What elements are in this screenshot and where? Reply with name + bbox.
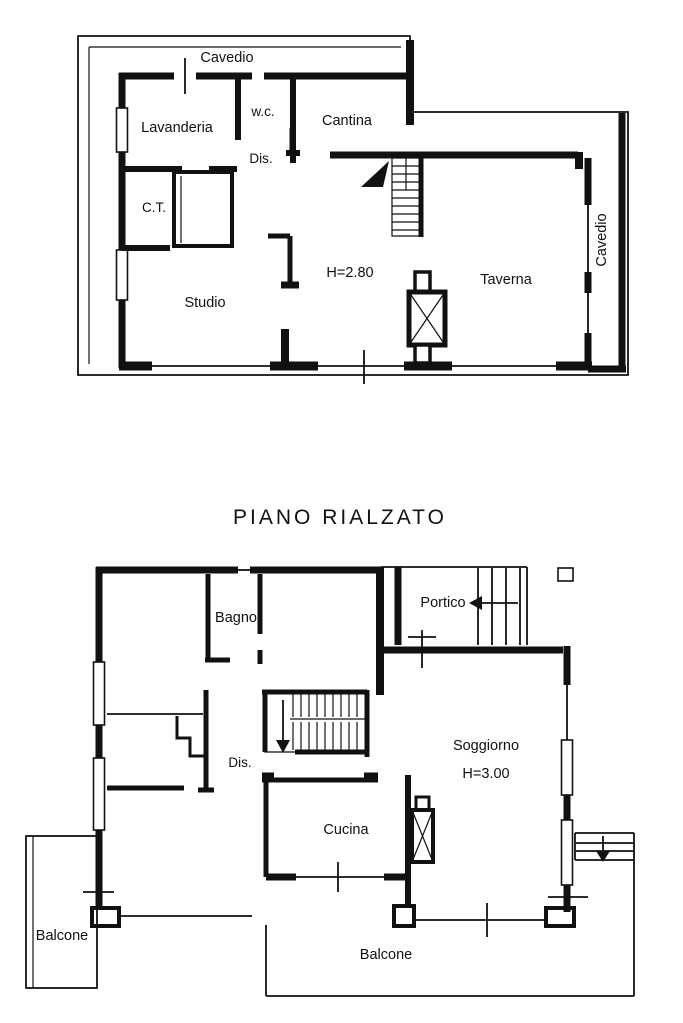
- rialzato-stairs: [262, 690, 367, 757]
- pillar-square: [558, 568, 573, 581]
- stair-direction-arrow: [361, 161, 389, 187]
- left-balcony-outline: [26, 836, 97, 988]
- label-balcone-left: Balcone: [36, 928, 88, 944]
- rialzato-flue: [412, 797, 433, 862]
- floor-plan-drawing: Cavedio Lavanderia w.c. Cantina Dis. C.T…: [0, 0, 683, 1023]
- label-cucina: Cucina: [323, 822, 369, 838]
- label-lavanderia: Lavanderia: [141, 120, 214, 136]
- basement-flue: [409, 272, 445, 363]
- label-soggiorno: Soggiorno: [453, 738, 519, 754]
- stair-down-arrow: [276, 740, 290, 753]
- label-dis-rialzato: Dis.: [228, 755, 251, 770]
- label-dis-basement: Dis.: [249, 151, 272, 166]
- label-wc: w.c.: [250, 104, 274, 119]
- label-studio: Studio: [184, 295, 225, 311]
- label-height-rialzato: H=3.00: [462, 766, 509, 782]
- label-balcone-bottom: Balcone: [360, 947, 412, 963]
- basement-stairs: [361, 155, 421, 237]
- basement-plan: Cavedio Lavanderia w.c. Cantina Dis. C.T…: [78, 36, 628, 384]
- label-cantina: Cantina: [322, 113, 373, 129]
- entry-arrow: [469, 596, 482, 610]
- plan-title: PIANO RIALZATO: [233, 506, 447, 529]
- rialzato-plan: Bagno Portico Dis. Soggiorno H=3.00 Cuci…: [26, 567, 634, 996]
- label-bagno: Bagno: [215, 610, 257, 626]
- label-cavedio-right: Cavedio: [594, 213, 610, 266]
- label-portico: Portico: [420, 595, 465, 611]
- floor-plan-sheet: Cavedio Lavanderia w.c. Cantina Dis. C.T…: [0, 0, 683, 1023]
- label-ct: C.T.: [142, 200, 166, 215]
- label-taverna: Taverna: [480, 272, 533, 288]
- label-cavedio-top: Cavedio: [200, 50, 253, 66]
- label-height-basement: H=2.80: [326, 265, 373, 281]
- ct-closet: [174, 172, 232, 246]
- portico-and-entry-stairs: [378, 567, 573, 695]
